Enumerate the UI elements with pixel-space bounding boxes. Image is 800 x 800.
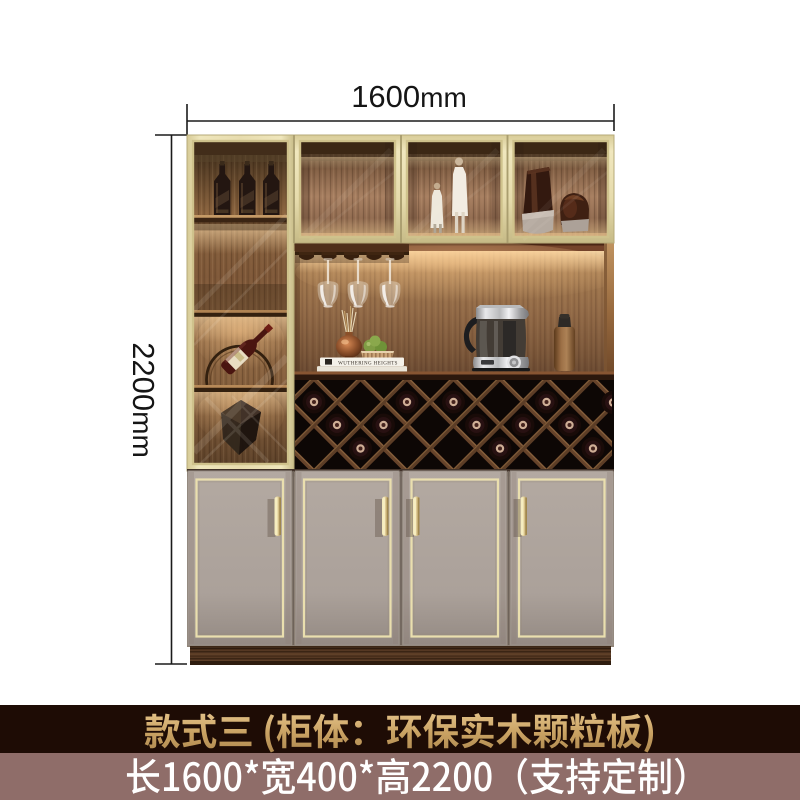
svg-text:WUTHERING HEIGHTS: WUTHERING HEIGHTS: [338, 362, 398, 367]
svg-text:1600mm: 1600mm: [351, 79, 467, 114]
svg-text:2200mm: 2200mm: [126, 342, 161, 458]
